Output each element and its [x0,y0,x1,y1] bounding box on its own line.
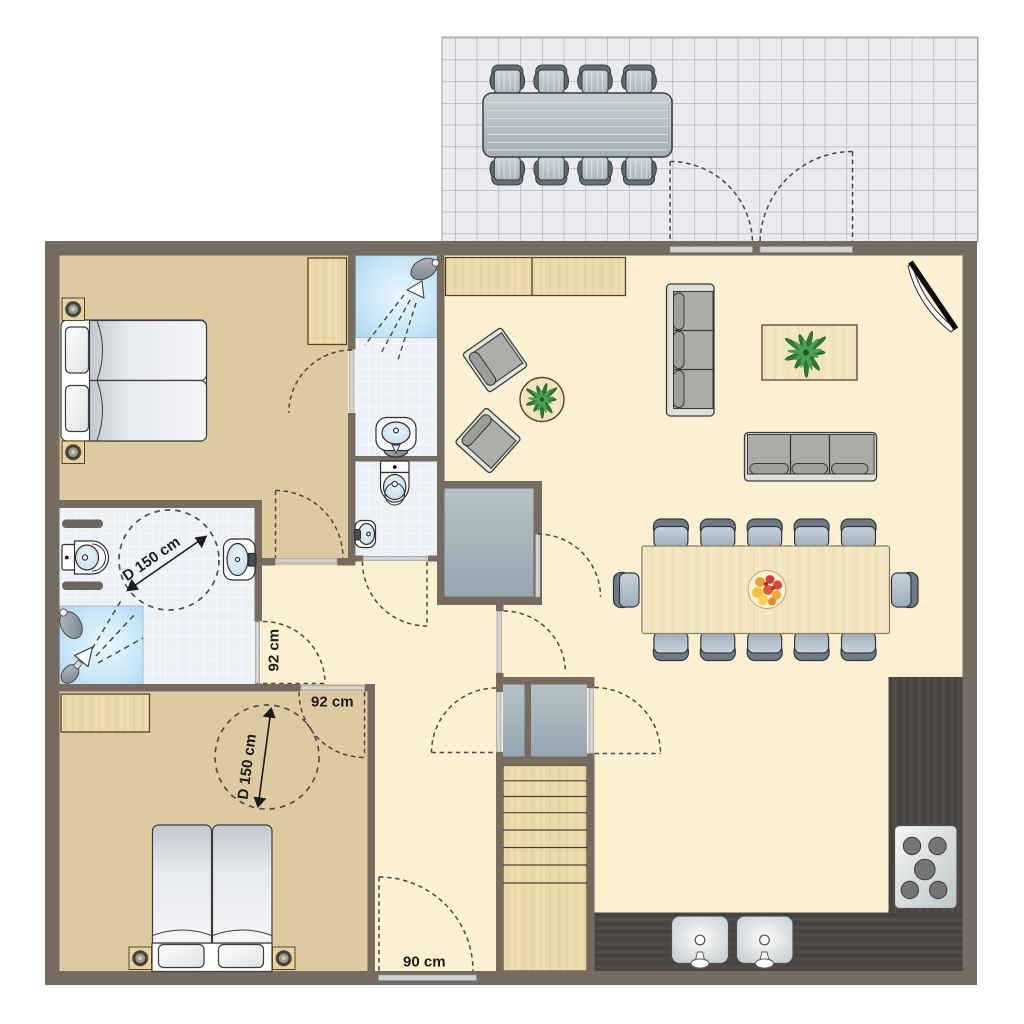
svg-text:92 cm: 92 cm [311,694,354,711]
svg-text:90 cm: 90 cm [403,954,446,971]
svg-text:92 cm: 92 cm [266,629,283,672]
